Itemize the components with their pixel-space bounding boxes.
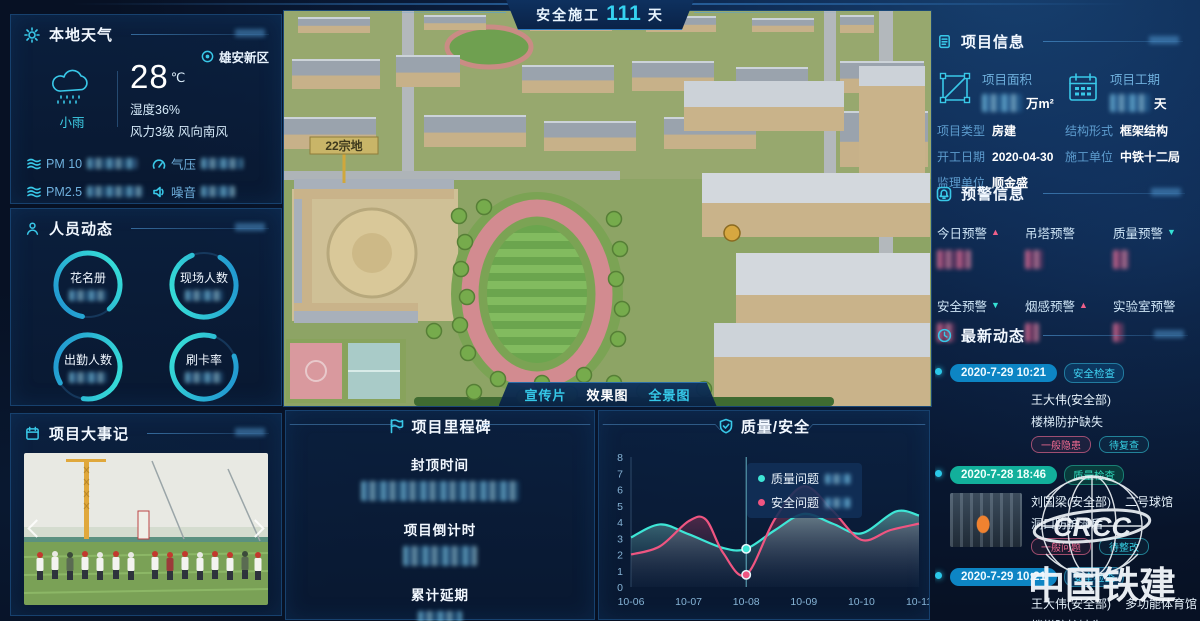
svg-text:10-11: 10-11	[906, 596, 929, 608]
svg-text:7: 7	[617, 468, 623, 480]
weather-condition: 小雨	[29, 112, 115, 131]
update-entry[interactable]: 2020-7-28 18:46 质量检查 刘国梁(安全部)二号球馆 洞口防护滞后…	[935, 465, 1200, 555]
legend-quality: 质量问题	[758, 470, 851, 487]
field-structure: 结构形式框架结构	[1065, 122, 1193, 139]
redacted-value	[361, 481, 519, 501]
header-decor	[131, 228, 269, 229]
stat-unit: 天	[1154, 93, 1167, 112]
banner-unit: 天	[648, 5, 664, 25]
milestone-delay: 累计延期	[411, 584, 469, 621]
trend-down-icon: ▼	[991, 301, 1000, 310]
panel-title: 项目大事记	[49, 423, 129, 444]
alarm-bell-icon	[935, 185, 953, 203]
temperature-unit: ℃	[171, 70, 186, 85]
air-waves-icon	[27, 158, 41, 170]
redacted-value	[1113, 250, 1129, 269]
redacted-value	[201, 158, 243, 169]
redacted-value	[201, 186, 235, 197]
panel-latest-updates: 最新动态 2020-7-29 10:21 安全检查 王大伟(安全部) 楼梯防护缺…	[935, 316, 1200, 621]
ring-label: 花名册	[70, 269, 106, 286]
ring-onsite-count: 现场人数	[161, 246, 247, 324]
trend-up-icon: ▲	[1079, 301, 1088, 310]
entry-location: 多功能体育馆	[1125, 595, 1197, 612]
trend-down-icon: ▼	[1167, 228, 1176, 237]
svg-text:1: 1	[617, 566, 623, 578]
header-decor	[147, 433, 269, 434]
field-project-type: 项目类型房建	[937, 122, 1065, 139]
calendar-page-icon	[23, 425, 41, 443]
site-3d-render: 22宗地 宣传片 效果图 全景图	[283, 10, 932, 407]
field-contractor: 施工单位中铁十二局	[1065, 148, 1193, 165]
document-icon	[935, 33, 953, 51]
ring-label: 出勤人数	[64, 351, 112, 368]
warning-crane: 吊塔预警	[1025, 223, 1113, 274]
stat-project-duration: 项目工期 天	[1065, 69, 1193, 112]
milestone-label: 项目倒计时	[403, 519, 477, 539]
banner-title: 安全施工	[536, 5, 600, 25]
stat-label: 项目工期	[1110, 69, 1167, 88]
redacted-value	[982, 94, 1022, 112]
stat-unit: 万m²	[1026, 93, 1054, 112]
panel-title: 人员动态	[49, 218, 113, 239]
tab-panorama[interactable]: 全景图	[649, 385, 691, 404]
cloud-rain-icon	[49, 67, 95, 105]
speaker-icon	[152, 186, 166, 198]
panel-title: 预警信息	[961, 183, 1025, 204]
severity-badge: 一般问题	[1031, 538, 1091, 555]
tab-promo-video[interactable]: 宣传片	[524, 385, 566, 404]
divider	[117, 71, 118, 127]
redacted-value	[825, 498, 851, 508]
banner-days: 111	[606, 3, 642, 24]
metric-label: PM 10	[46, 157, 82, 171]
update-entry[interactable]: 2020-7-29 10:21 安全检查 王大伟(安全部) 楼梯防护缺失 一般隐…	[935, 363, 1200, 453]
scene-view-tabs: 宣传片 效果图 全景图	[498, 382, 716, 406]
panel-title: 质量/安全	[741, 416, 810, 437]
panel-quality-safety-chart: 质量/安全 01234567810-0610-0710-0810-0910-10…	[598, 410, 930, 620]
wind: 风力3级 风向南风	[130, 121, 228, 140]
metric-label: 噪音	[171, 182, 196, 201]
inspector-name: 王大伟(安全部)	[1031, 391, 1111, 408]
carousel-prev-button[interactable]	[26, 518, 40, 540]
svg-text:10-10: 10-10	[848, 596, 875, 608]
header-decor	[1043, 193, 1185, 194]
chart-tooltip-legend: 质量问题 安全问题	[747, 463, 862, 518]
status-badge: 待复查	[1099, 436, 1149, 453]
metric-pm25: PM2.5	[27, 182, 146, 201]
entry-thumbnail[interactable]	[950, 391, 1022, 445]
area-icon	[937, 69, 973, 111]
location-label: 雄安新区	[219, 47, 269, 66]
milestone-countdown: 项目倒计时	[403, 519, 477, 571]
redacted-value	[185, 290, 223, 301]
entry-thumbnail[interactable]	[950, 493, 1022, 547]
panel-project-milestone: 项目里程碑 封顶时间 项目倒计时 累计延期	[285, 410, 595, 620]
aerial-render-image: 22宗地	[284, 11, 931, 406]
metric-pm10: PM 10	[27, 154, 146, 173]
entry-type-badge: 质量检查	[1064, 465, 1124, 485]
warning-quality: 质量预警▼	[1113, 223, 1199, 274]
redacted-value	[825, 474, 851, 484]
location-badge: 雄安新区	[201, 47, 269, 66]
milestone-label: 累计延期	[411, 584, 469, 604]
flag-icon	[388, 418, 404, 434]
svg-text:10-08: 10-08	[733, 596, 760, 608]
panel-project-info: 项目信息 项目面积 万m² 项目工期 天	[935, 22, 1195, 191]
metric-label: 气压	[171, 154, 196, 173]
header-decor	[1043, 41, 1183, 42]
entry-location: 二号球馆	[1125, 493, 1173, 510]
status-badge: 待整改	[1099, 538, 1149, 555]
temperature-value: 28	[130, 58, 169, 95]
entry-thumbnail[interactable]	[950, 595, 1022, 621]
ring-attendance: 出勤人数	[45, 328, 131, 406]
entry-date: 2020-7-28 18:46	[950, 466, 1057, 484]
location-pin-icon	[201, 50, 214, 63]
field-start-date: 开工日期2020-04-30	[937, 148, 1065, 165]
metric-pressure: 气压	[152, 154, 271, 173]
person-icon	[23, 220, 41, 238]
dashboard: 安全施工 111 天 本地天气 雄安新区	[0, 0, 1200, 621]
stat-label: 项目面积	[982, 69, 1054, 88]
redacted-value	[69, 290, 107, 301]
svg-text:4: 4	[617, 517, 623, 529]
milestone-topping-time: 封顶时间	[361, 454, 519, 506]
carousel-next-button[interactable]	[252, 518, 266, 540]
legend-label: 安全问题	[771, 494, 819, 511]
gauge-icon	[152, 158, 166, 170]
redacted-value	[937, 250, 971, 269]
event-photo	[24, 453, 268, 605]
stat-project-area: 项目面积 万m²	[937, 69, 1065, 112]
redacted-value	[87, 158, 137, 169]
svg-text:10-09: 10-09	[790, 596, 817, 608]
header-banner: 安全施工 111 天	[506, 0, 694, 30]
calendar-icon	[1065, 69, 1101, 111]
svg-text:0: 0	[617, 582, 623, 594]
legend-dot-quality	[758, 475, 765, 482]
panel-project-milestones-photo: 项目大事记	[10, 413, 282, 616]
clock-icon	[935, 327, 953, 345]
milestone-label: 封顶时间	[361, 454, 519, 474]
header-decor	[1043, 335, 1188, 336]
redacted-value	[403, 546, 477, 566]
ring-roster: 花名册	[45, 246, 131, 324]
svg-text:5: 5	[617, 501, 623, 513]
svg-text:3: 3	[617, 533, 623, 545]
panel-title: 本地天气	[49, 24, 113, 45]
redacted-value	[69, 372, 107, 383]
air-waves-icon	[27, 186, 41, 198]
update-entry[interactable]: 2020-7-29 10:21 安全检查 王大伟(安全部)多功能体育馆 楼梯防护…	[935, 567, 1200, 621]
header-decor	[131, 34, 269, 35]
legend-label: 质量问题	[771, 470, 819, 487]
entry-type-badge: 安全检查	[1064, 363, 1124, 383]
svg-text:10-07: 10-07	[675, 596, 702, 608]
redacted-value	[1110, 94, 1150, 112]
trend-up-icon: ▲	[991, 228, 1000, 237]
inspector-name: 王大伟(安全部)	[1031, 595, 1111, 612]
tab-render-view[interactable]: 效果图	[586, 385, 628, 404]
panel-title: 最新动态	[961, 325, 1025, 346]
svg-text:6: 6	[617, 485, 623, 497]
panel-title: 项目信息	[961, 31, 1025, 52]
inspector-name: 刘国梁(安全部)	[1031, 493, 1111, 510]
gear-icon	[23, 26, 41, 44]
entry-type-badge: 安全检查	[1064, 567, 1124, 587]
redacted-value	[185, 372, 223, 383]
severity-badge: 一般隐患	[1031, 436, 1091, 453]
svg-text:2: 2	[617, 550, 623, 562]
legend-dot-safety	[758, 499, 765, 506]
shield-check-icon	[718, 418, 734, 434]
panel-personnel-dynamics: 人员动态 花名册 现场人数 出勤人数 刷卡率	[10, 208, 282, 406]
metric-noise: 噪音	[152, 182, 271, 201]
warning-today: 今日预警▲	[937, 223, 1025, 274]
ring-swipe-rate: 刷卡率	[161, 328, 247, 406]
legend-safety: 安全问题	[758, 494, 851, 511]
humidity: 湿度36%	[130, 99, 228, 118]
ring-label: 现场人数	[180, 269, 228, 286]
svg-text:8: 8	[617, 452, 623, 464]
redacted-value	[87, 186, 143, 197]
panel-local-weather: 本地天气 雄安新区 小雨	[10, 14, 282, 204]
issue-description: 楼梯防护缺失	[1031, 617, 1197, 621]
redacted-value	[418, 611, 462, 621]
panel-title: 项目里程碑	[411, 416, 491, 437]
svg-text:10-06: 10-06	[618, 596, 645, 608]
ring-label: 刷卡率	[186, 351, 222, 368]
issue-description: 洞口防护滞后	[1031, 515, 1173, 532]
entry-date: 2020-7-29 10:21	[950, 568, 1057, 586]
issue-description: 楼梯防护缺失	[1031, 413, 1149, 430]
entry-date: 2020-7-29 10:21	[950, 364, 1057, 382]
redacted-value	[1025, 250, 1043, 269]
metric-label: PM2.5	[46, 185, 82, 199]
plot-label: 22宗地	[325, 138, 362, 153]
